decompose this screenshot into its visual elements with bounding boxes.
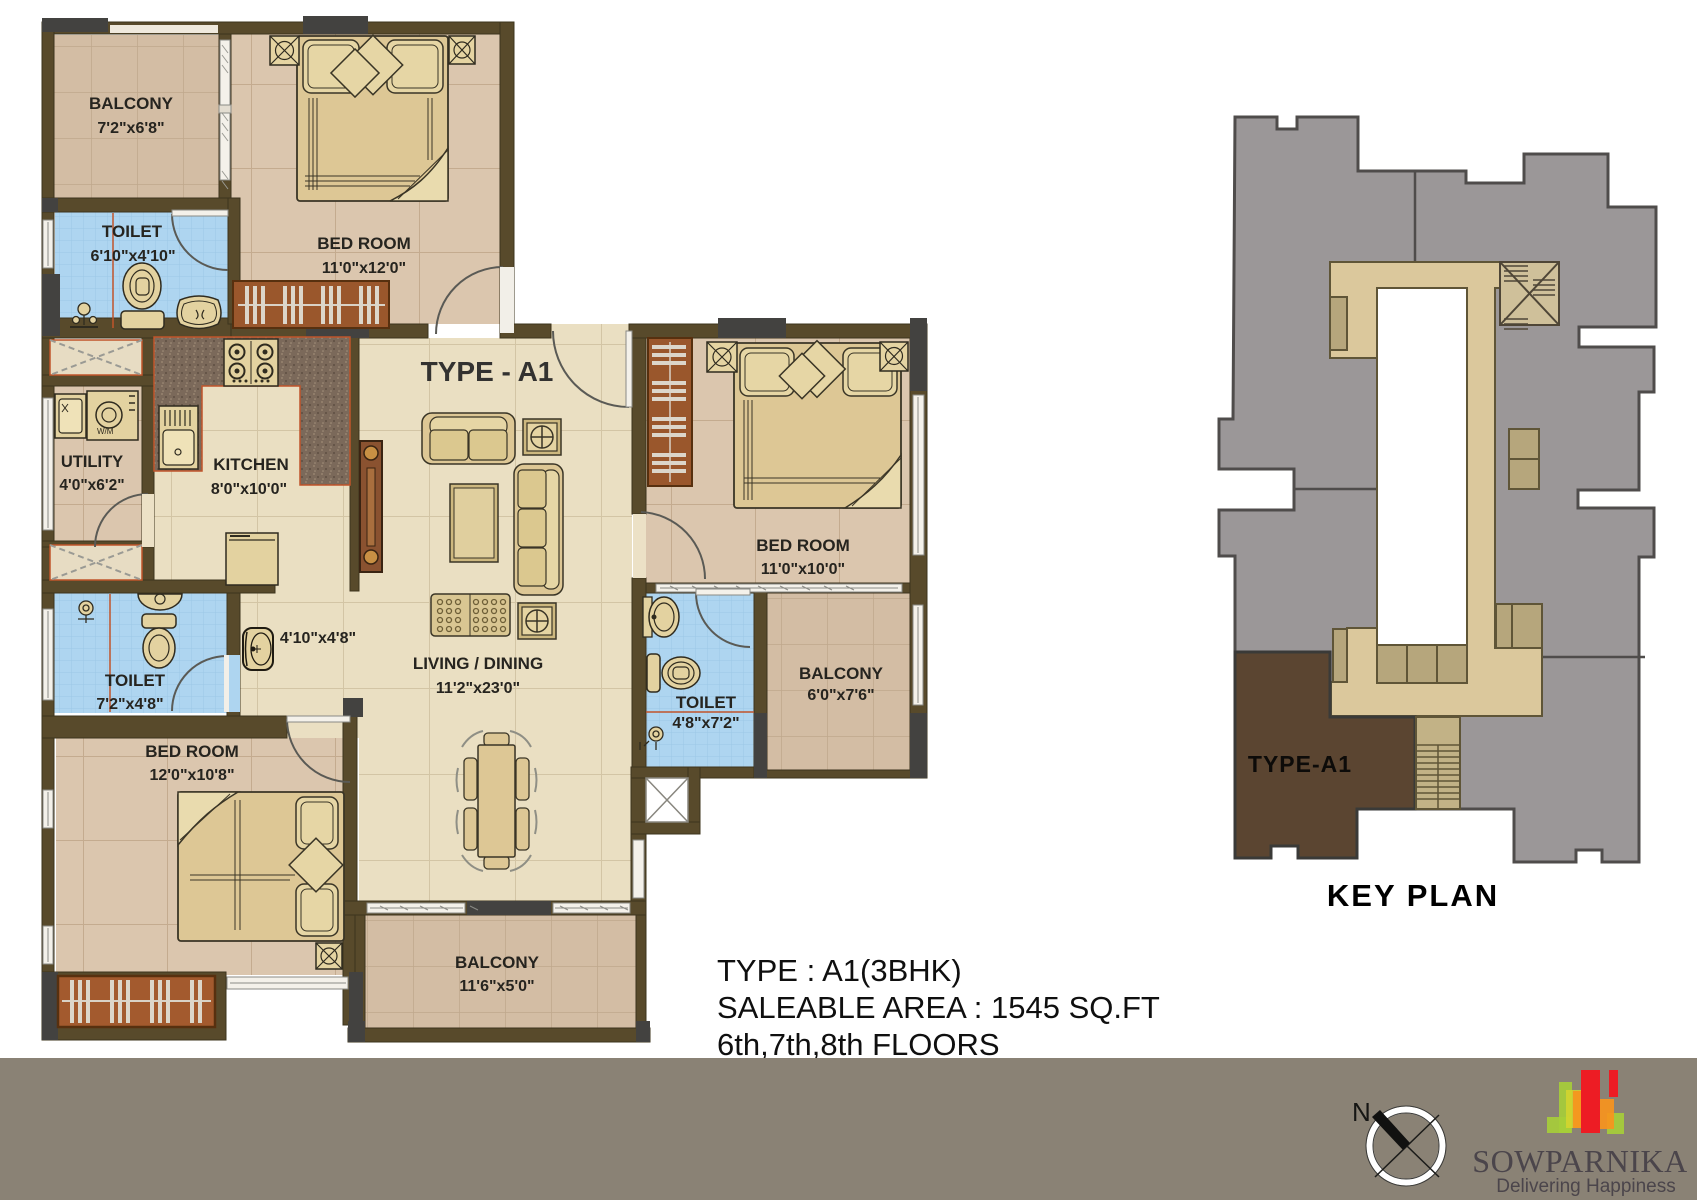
svg-text:11'0"x12'0": 11'0"x12'0"	[322, 260, 406, 277]
svg-text:6'10"x4'10": 6'10"x4'10"	[90, 248, 175, 265]
svg-text:KEY PLAN: KEY PLAN	[1327, 878, 1499, 913]
svg-text:LIVING / DINING: LIVING / DINING	[413, 654, 543, 673]
svg-text:6th,7th,8th FLOORS: 6th,7th,8th FLOORS	[717, 1027, 1000, 1062]
svg-text:Delivering Happiness: Delivering Happiness	[1496, 1176, 1676, 1197]
svg-text:4'8"x7'2": 4'8"x7'2"	[672, 715, 739, 732]
svg-text:KITCHEN: KITCHEN	[213, 455, 289, 474]
svg-text:BALCONY: BALCONY	[455, 953, 540, 972]
svg-text:8'0"x10'0": 8'0"x10'0"	[211, 481, 287, 498]
svg-text:11'2"x23'0": 11'2"x23'0"	[436, 680, 520, 697]
svg-text:TYPE - A1: TYPE - A1	[421, 356, 554, 387]
svg-text:TOILET: TOILET	[676, 693, 737, 712]
svg-text:TYPE : A1(3BHK): TYPE : A1(3BHK)	[717, 953, 962, 988]
svg-text:11'6"x5'0": 11'6"x5'0"	[459, 978, 534, 995]
svg-text:7'2"x6'8": 7'2"x6'8"	[97, 120, 164, 137]
svg-text:BALCONY: BALCONY	[89, 94, 174, 113]
svg-text:SOWPARNIKA: SOWPARNIKA	[1472, 1143, 1687, 1179]
svg-text:TYPE-A1: TYPE-A1	[1248, 751, 1352, 777]
svg-text:W/M: W/M	[97, 427, 114, 436]
svg-text:6'0"x7'6": 6'0"x7'6"	[807, 687, 874, 704]
svg-text:TOILET: TOILET	[102, 222, 163, 241]
svg-text:N: N	[1352, 1097, 1371, 1127]
svg-text:4'10"x4'8": 4'10"x4'8"	[280, 630, 356, 647]
svg-text:11'0"x10'0": 11'0"x10'0"	[761, 561, 845, 578]
svg-text:BED ROOM: BED ROOM	[756, 536, 850, 555]
svg-text:SALEABLE AREA : 1545 SQ.FT: SALEABLE AREA : 1545 SQ.FT	[717, 990, 1160, 1025]
svg-text:12'0"x10'8": 12'0"x10'8"	[149, 767, 234, 784]
svg-text:BALCONY: BALCONY	[799, 664, 884, 683]
svg-text:7'2"x4'8": 7'2"x4'8"	[96, 696, 163, 713]
svg-text:TOILET: TOILET	[105, 671, 166, 690]
svg-text:4'0"x6'2": 4'0"x6'2"	[59, 477, 124, 494]
svg-text:BED ROOM: BED ROOM	[145, 742, 239, 761]
svg-text:BED ROOM: BED ROOM	[317, 234, 411, 253]
svg-text:UTILITY: UTILITY	[61, 453, 123, 471]
